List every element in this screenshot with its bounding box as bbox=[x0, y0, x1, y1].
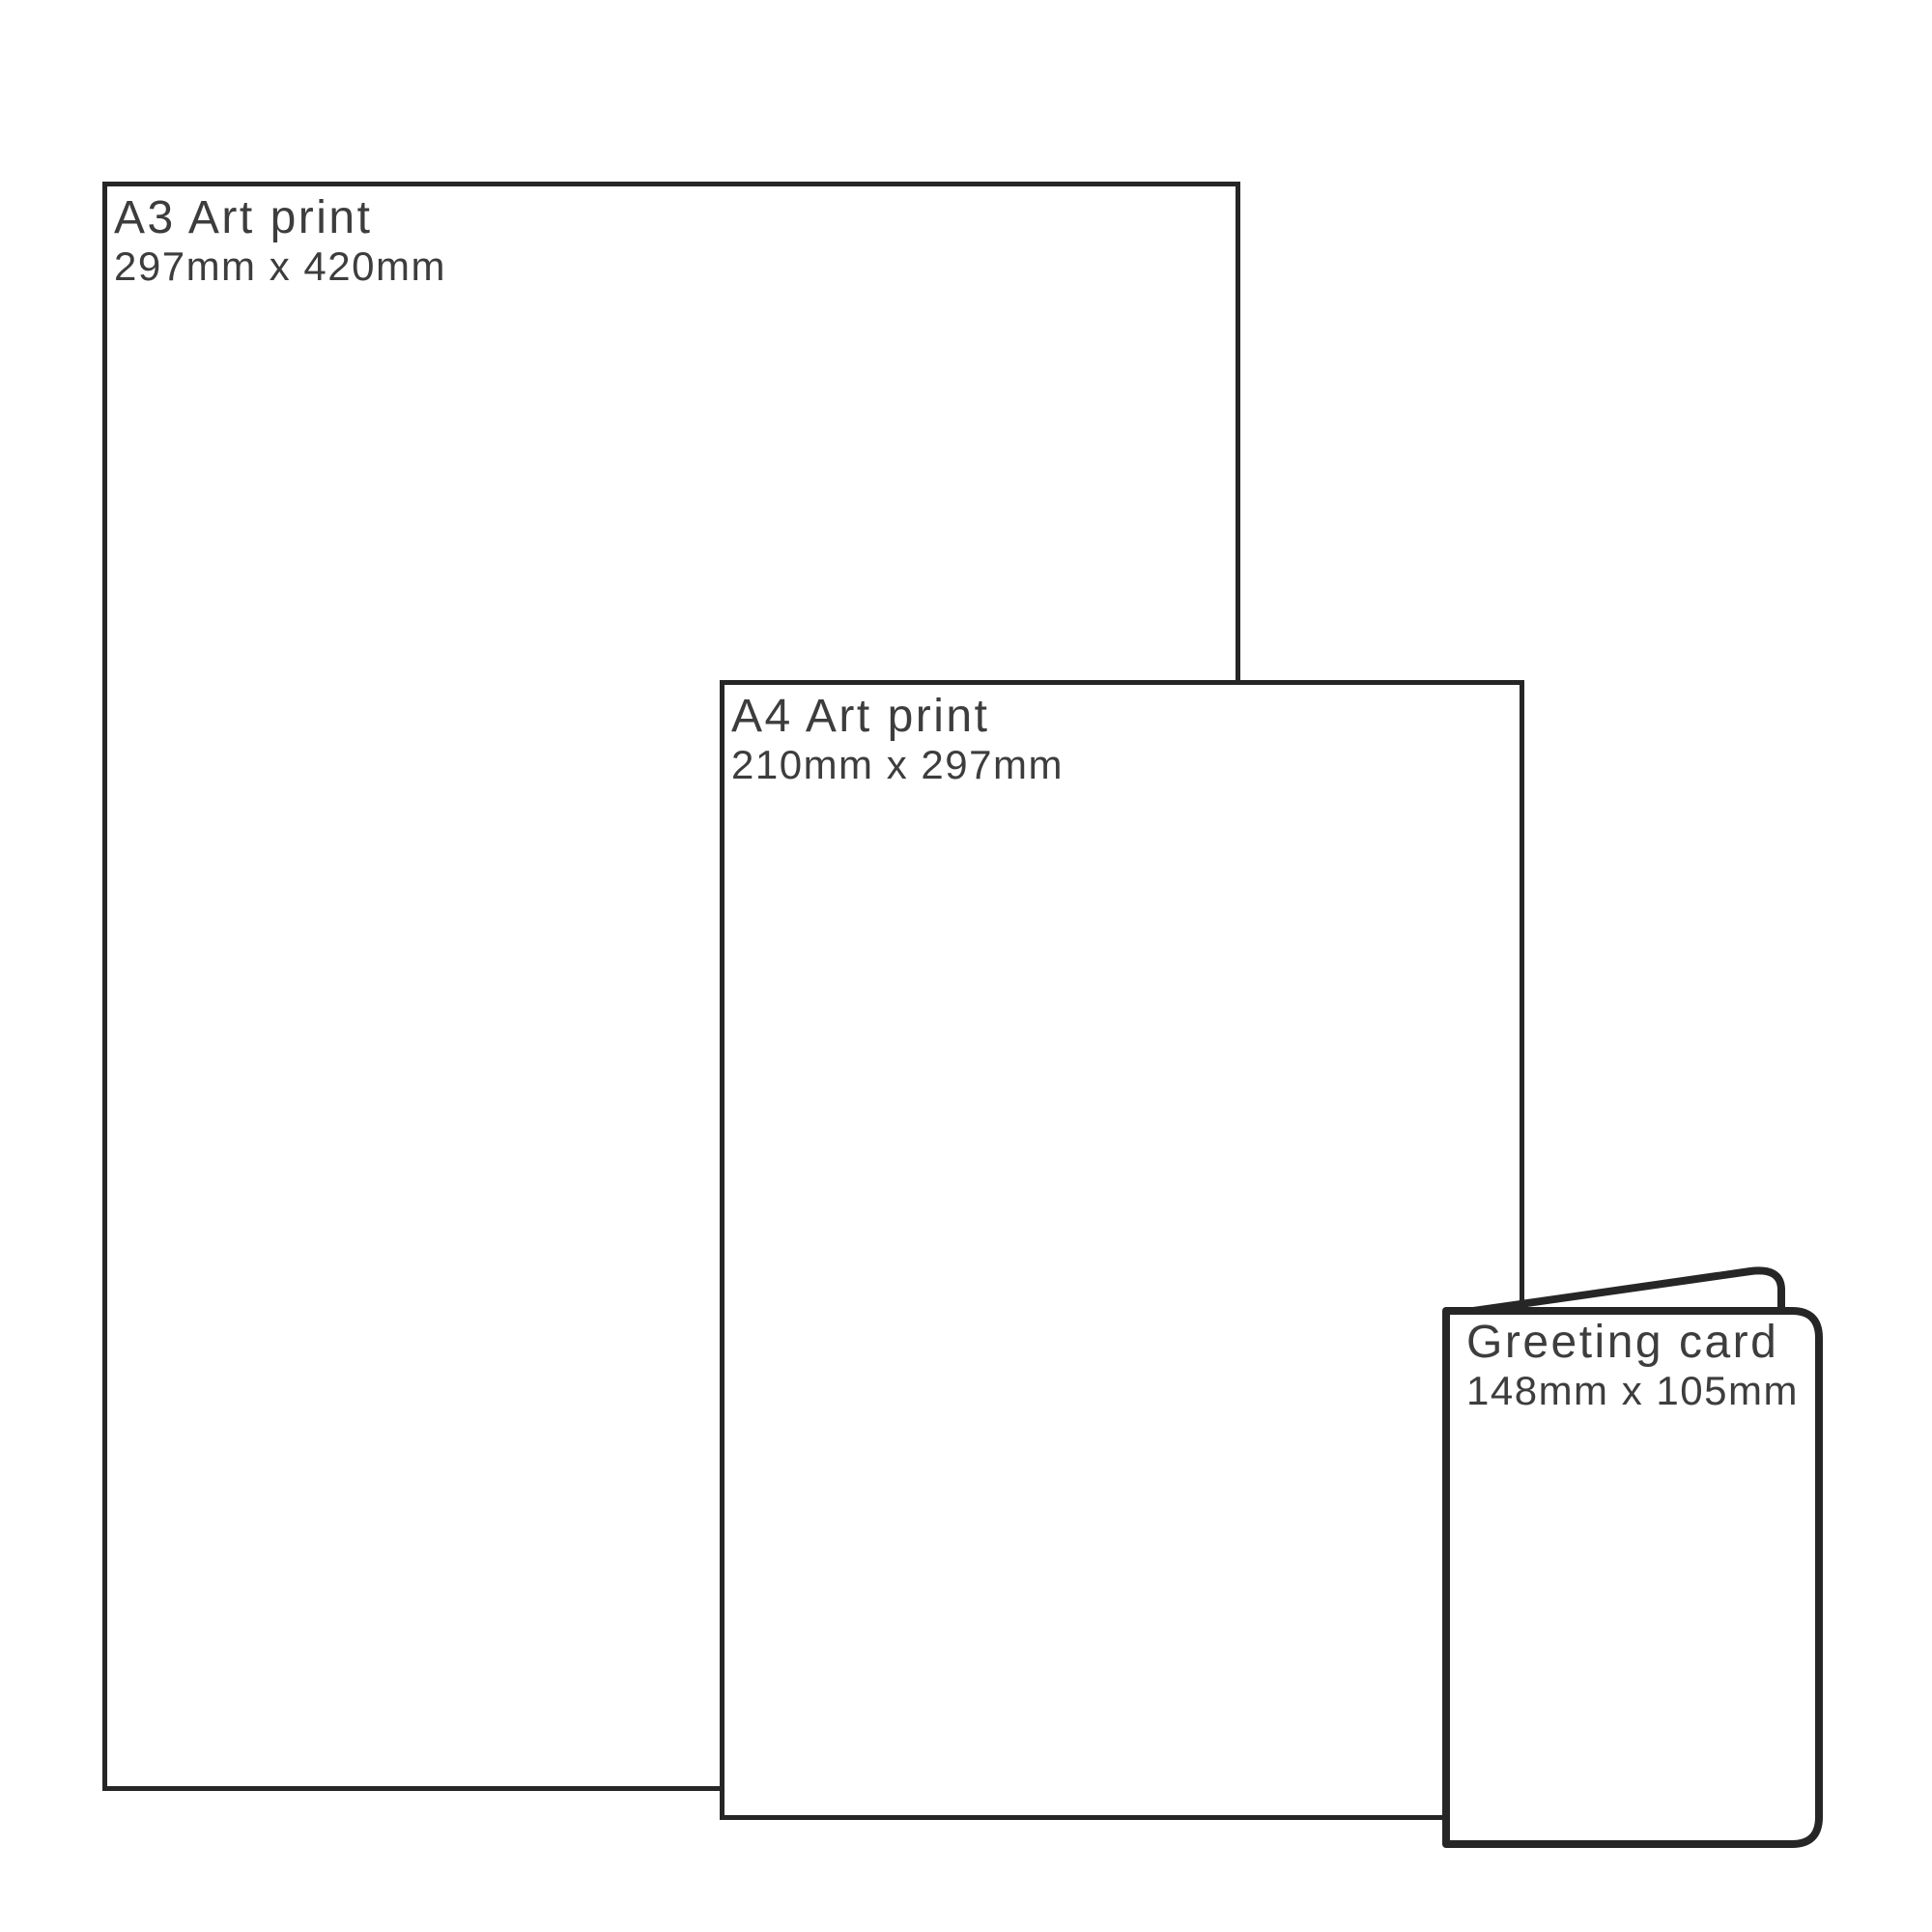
a4-dimensions: 210mm x 297mm bbox=[731, 745, 1064, 785]
greeting-card-title: Greeting card bbox=[1466, 1320, 1799, 1366]
a3-dimensions: 297mm x 420mm bbox=[114, 246, 446, 287]
a4-title: A4 Art print bbox=[731, 694, 1064, 740]
size-comparison-diagram: A3 Art print 297mm x 420mm A4 Art print … bbox=[0, 0, 1932, 1932]
a3-title: A3 Art print bbox=[114, 195, 446, 241]
greeting-card-label: Greeting card 148mm x 105mm bbox=[1466, 1320, 1799, 1411]
greeting-card-dimensions: 148mm x 105mm bbox=[1466, 1371, 1799, 1411]
a4-label: A4 Art print 210mm x 297mm bbox=[731, 694, 1064, 785]
a3-label: A3 Art print 297mm x 420mm bbox=[114, 195, 446, 287]
